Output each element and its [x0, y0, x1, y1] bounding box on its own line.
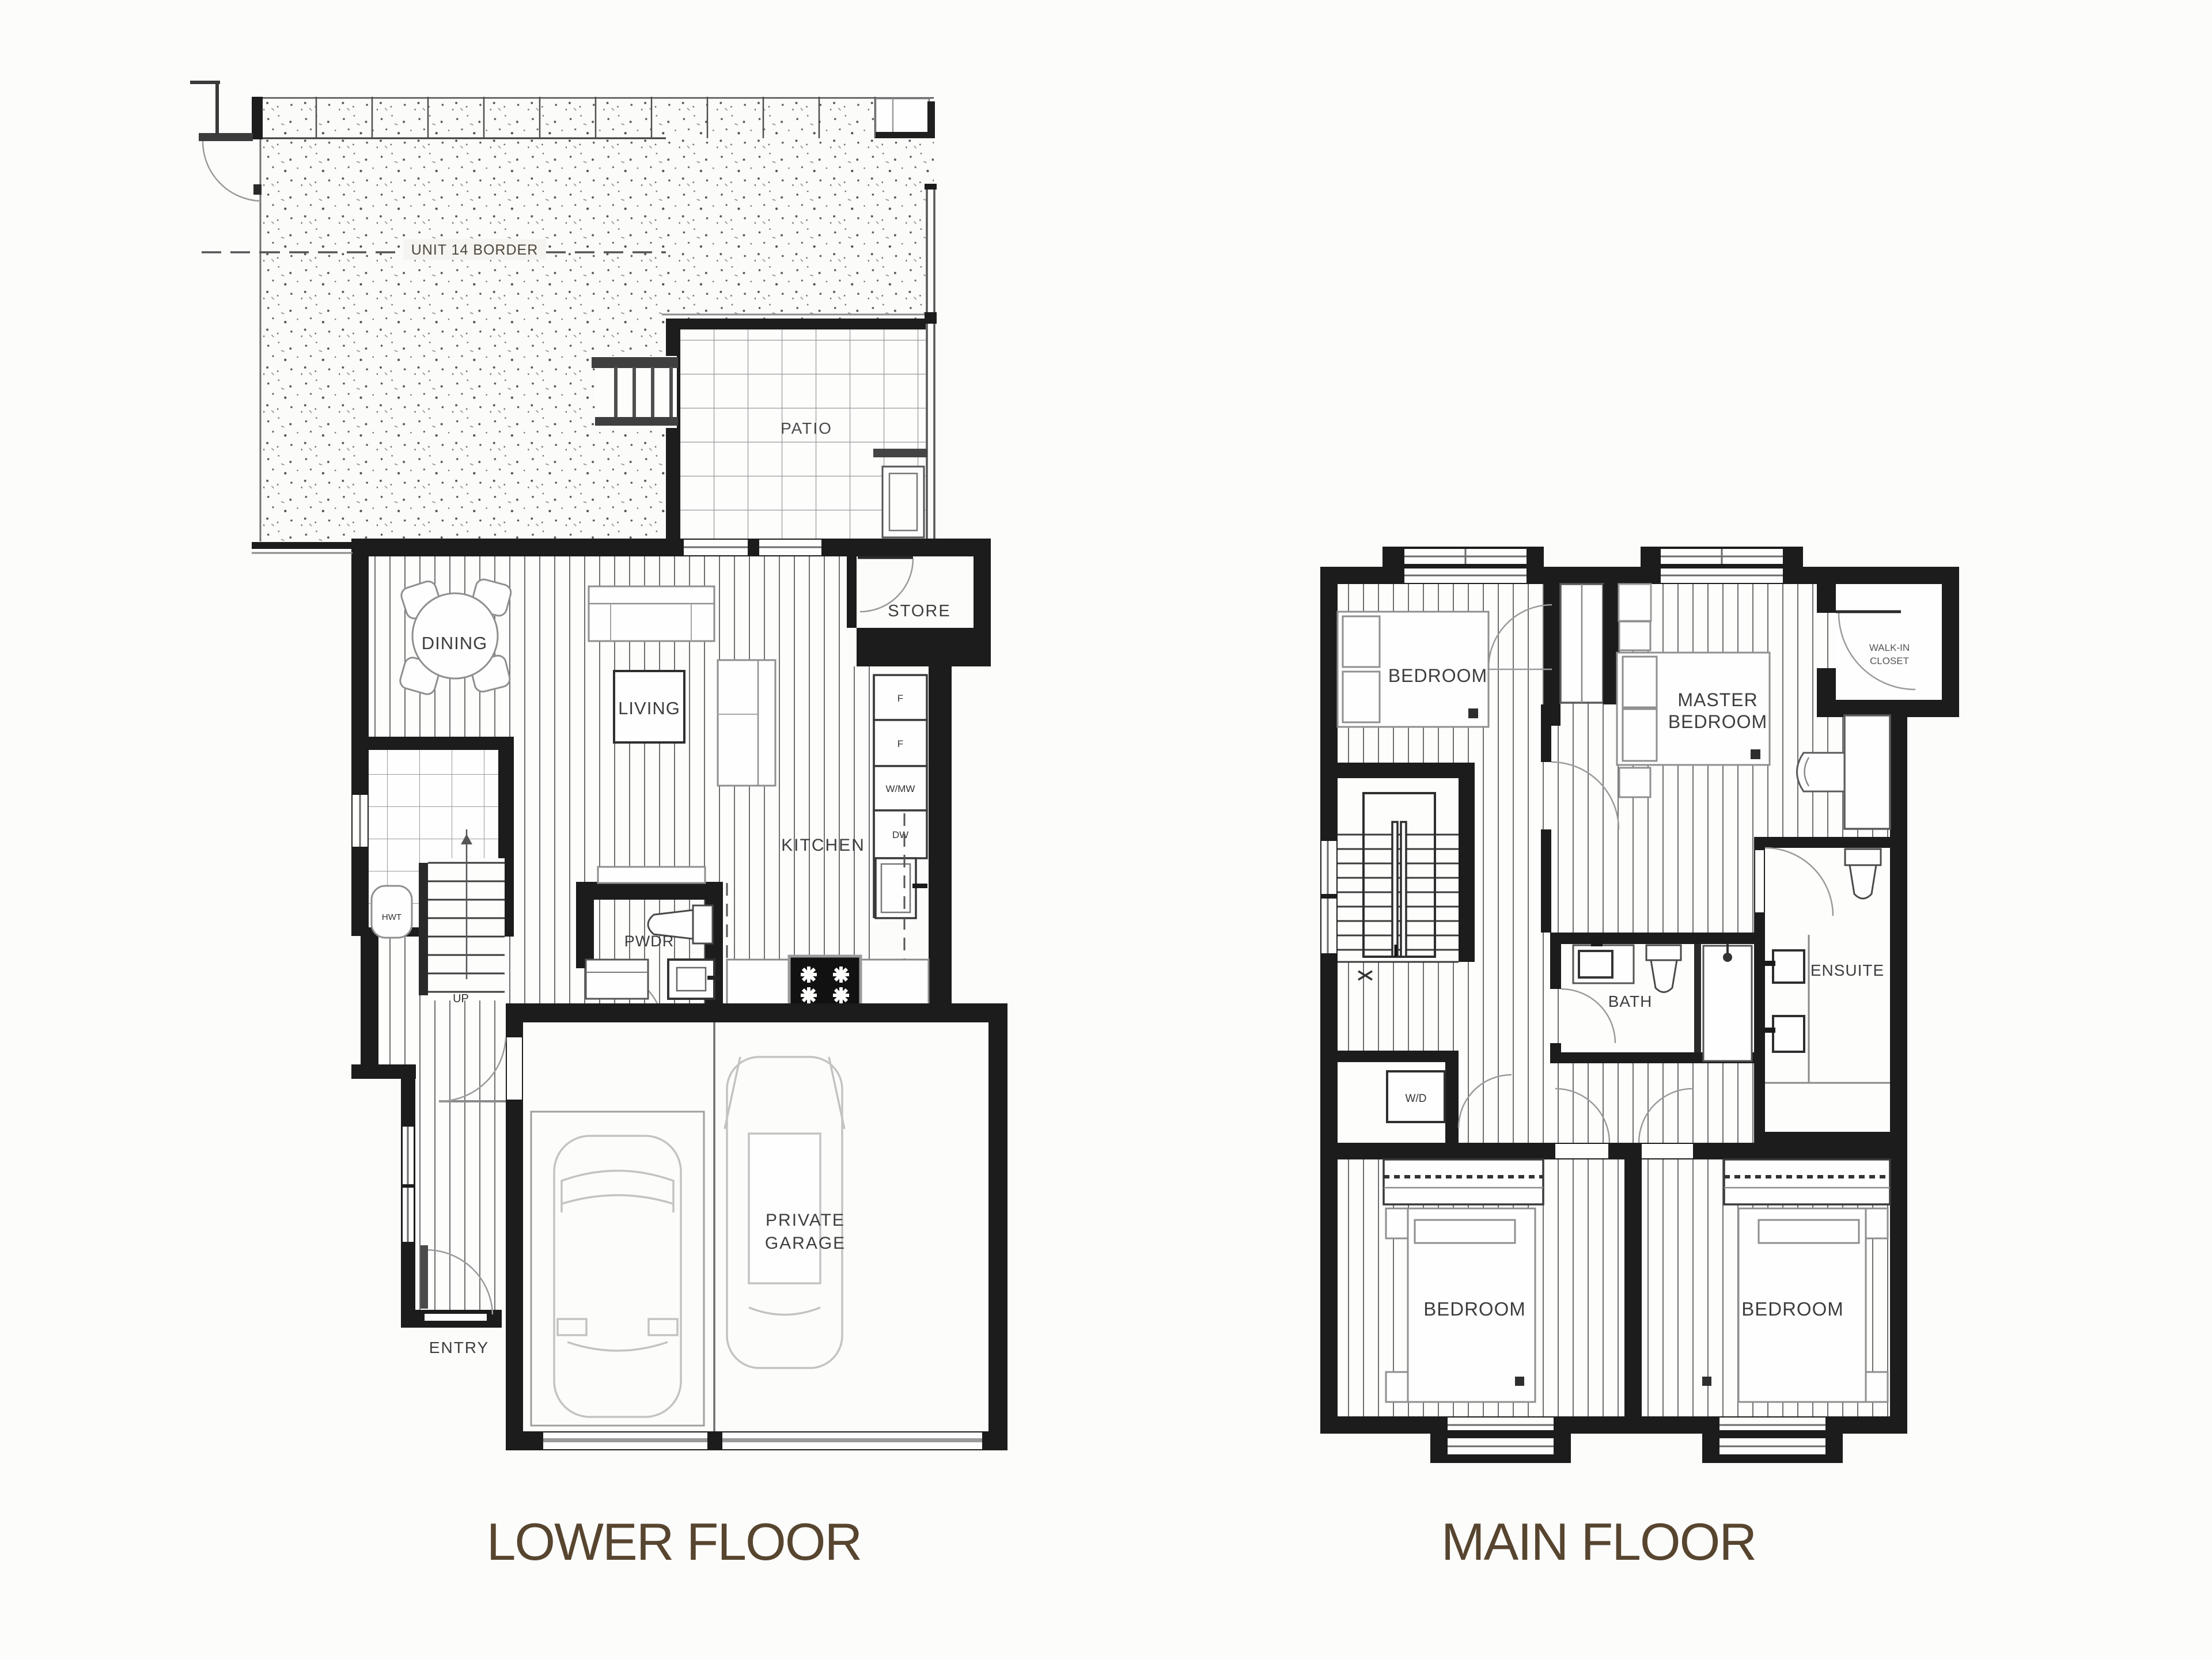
svg-text:ENTRY: ENTRY	[429, 1339, 489, 1356]
svg-text:KITCHEN: KITCHEN	[781, 836, 865, 855]
svg-text:DW: DW	[892, 829, 908, 840]
svg-text:LOWER FLOOR: LOWER FLOOR	[487, 1513, 861, 1571]
svg-text:CLOSET: CLOSET	[1870, 655, 1909, 666]
svg-text:MASTER: MASTER	[1677, 689, 1758, 710]
svg-text:DINING: DINING	[422, 633, 488, 653]
svg-text:W/D: W/D	[1406, 1093, 1427, 1105]
svg-text:BEDROOM: BEDROOM	[1741, 1298, 1844, 1320]
svg-text:PWDR: PWDR	[624, 933, 675, 950]
svg-text:LIVING: LIVING	[618, 698, 680, 718]
svg-text:F: F	[897, 693, 903, 704]
svg-text:UP: UP	[453, 992, 469, 1005]
svg-text:WALK-IN: WALK-IN	[1869, 642, 1910, 653]
svg-text:BEDROOM: BEDROOM	[1388, 665, 1487, 686]
svg-text:BEDROOM: BEDROOM	[1423, 1298, 1526, 1320]
svg-text:HWT: HWT	[382, 912, 402, 922]
svg-text:BEDROOM: BEDROOM	[1668, 711, 1767, 732]
svg-text:W/MW: W/MW	[886, 783, 915, 794]
svg-text:PRIVATE: PRIVATE	[766, 1211, 845, 1230]
svg-text:BATH: BATH	[1608, 992, 1653, 1010]
svg-text:ENSUITE: ENSUITE	[1810, 961, 1884, 979]
svg-text:PATIO: PATIO	[781, 419, 832, 437]
svg-text:GARAGE: GARAGE	[765, 1234, 846, 1253]
svg-text:F: F	[897, 738, 903, 749]
svg-text:STORE: STORE	[888, 602, 950, 620]
svg-text:MAIN FLOOR: MAIN FLOOR	[1441, 1513, 1756, 1571]
svg-text:UNIT 14 BORDER: UNIT 14 BORDER	[411, 242, 539, 258]
